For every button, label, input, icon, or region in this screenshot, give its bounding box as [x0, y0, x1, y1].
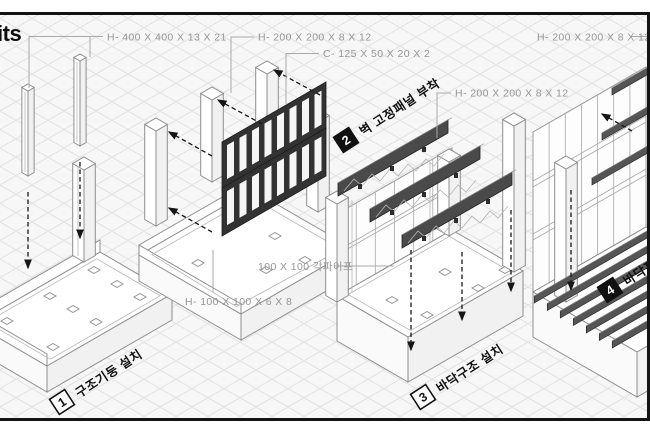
page-title-fragment: its — [0, 21, 21, 46]
assembly-diagram: H- 400 X 400 X 13 X 21 H- 200 X 200 X 8 … — [0, 0, 650, 433]
spec-label-h200-columns: H- 200 X 200 X 8 X 12 — [258, 32, 371, 44]
floating-column — [74, 54, 86, 146]
installed-column — [73, 157, 96, 262]
spec-label-h200-right: H- 200 X 200 X 8 X 12 — [537, 32, 650, 44]
spec-label-h400: H- 400 X 400 X 13 X 21 — [107, 32, 227, 44]
spec-label-h200-beams: H- 200 X 200 X 8 X 12 — [455, 88, 568, 100]
diagram-canvas: H- 400 X 400 X 13 X 21 H- 200 X 200 X 8 … — [0, 0, 650, 433]
installed-column — [326, 191, 349, 302]
floating-column — [22, 84, 34, 176]
installed-column — [503, 113, 526, 272]
installed-column — [145, 118, 168, 226]
spec-label-h100: H- 100 X 100 X 6 X 8 — [185, 296, 292, 308]
spec-label-c125: C- 125 X 50 X 20 X 2 — [323, 48, 430, 60]
spec-label-square-pipe: 100 X 100 각파이프 — [258, 261, 353, 273]
